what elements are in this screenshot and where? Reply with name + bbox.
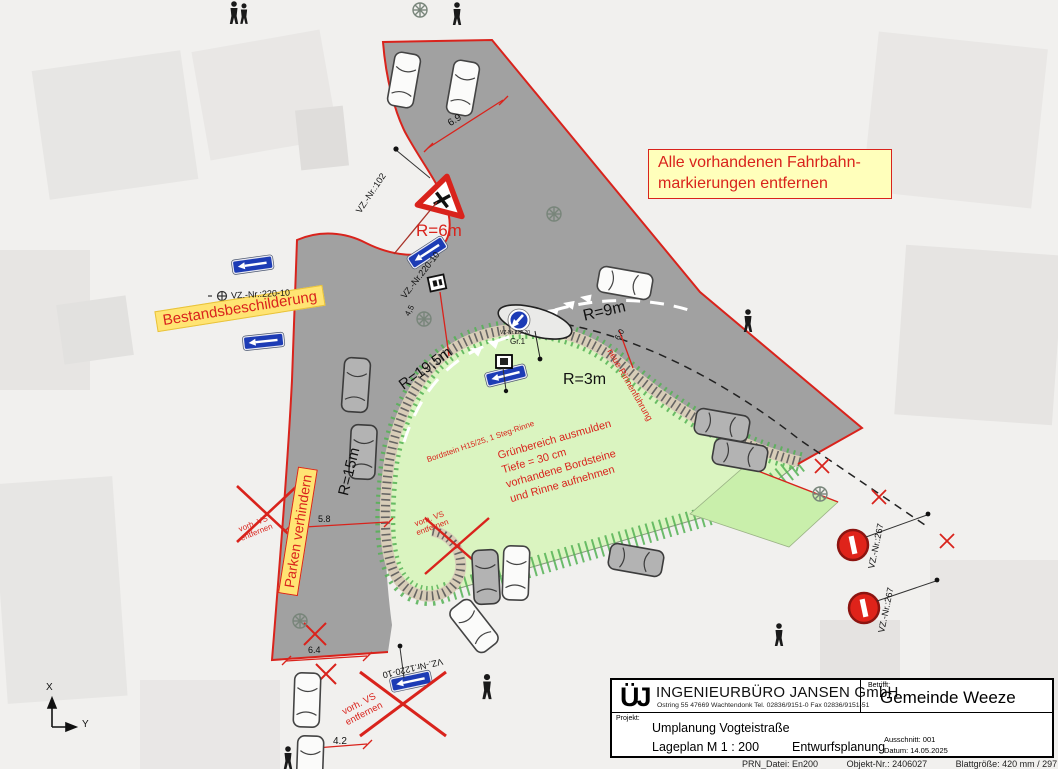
axis-x-label: X <box>46 682 53 694</box>
title-block: ÜJ INGENIEURBÜRO JANSEN GmbH Ostring 55 … <box>610 678 1054 758</box>
company-logo: ÜJ <box>620 682 649 713</box>
dim-6-4: 6.4 <box>308 645 321 655</box>
note-remove-markings: Alle vorhandenen Fahrbahn- markierungen … <box>648 149 892 199</box>
label-radius-3m: R=3m <box>563 371 606 389</box>
ausschnitt-value: Ausschnitt: 001 <box>884 735 935 744</box>
dim-4-2: 4.2 <box>333 736 347 748</box>
note-line-1: Alle vorhandenen Fahrbahn- <box>658 153 882 174</box>
axis-y-label: Y <box>82 719 89 731</box>
site-plan-page: Alle vorhandenen Fahrbahn- markierungen … <box>0 0 1058 769</box>
title-block-footer: PRN_Datei: En200 Objekt-Nr.: 2406027 Bla… <box>742 759 1058 769</box>
label-radius-6m: R=6m <box>416 221 462 241</box>
label-gr1: Gr.1 <box>510 337 525 346</box>
site-plan-drawing <box>0 0 1058 769</box>
footer-prn: PRN_Datei: En200 <box>742 759 818 769</box>
projekt-value: Umplanung Vogteistraße <box>652 721 790 735</box>
label-vz222: VZ-Nr.222-20 <box>500 331 530 337</box>
projekt-label: Projekt: <box>616 715 640 722</box>
plan-phase: Entwurfsplanung <box>792 740 885 754</box>
dim-5-8: 5.8 <box>318 514 331 524</box>
company-name: INGENIEURBÜRO JANSEN GmbH <box>656 684 899 701</box>
plan-title: Lageplan M 1 : 200 <box>652 740 759 754</box>
axis-icon <box>48 698 76 731</box>
note-line-2: markierungen entfernen <box>658 174 882 195</box>
keep-right-sign <box>508 309 530 331</box>
footer-objekt: Objekt-Nr.: 2406027 <box>847 759 928 769</box>
datum-value: Datum: 14.05.2025 <box>884 746 948 755</box>
company-address: Ostring 55 47669 Wachtendonk Tel. 02836/… <box>657 702 869 709</box>
betrifft-value: Gemeinde Weeze <box>880 688 1016 708</box>
